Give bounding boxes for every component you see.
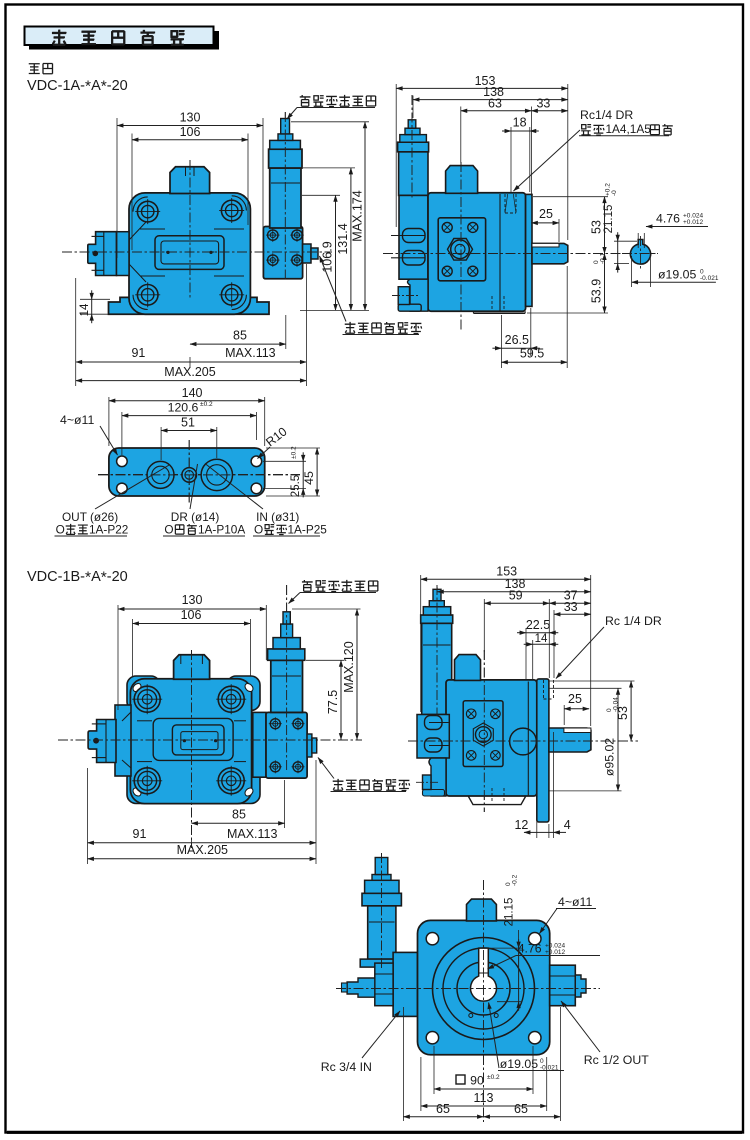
svg-text:-0.04: -0.04 bbox=[612, 697, 619, 712]
svg-text:33: 33 bbox=[536, 96, 550, 110]
svg-text:4~ø11: 4~ø11 bbox=[558, 895, 592, 909]
svg-text:O: O bbox=[254, 523, 263, 537]
svg-text:±0.2: ±0.2 bbox=[200, 401, 213, 408]
svg-text:±0.2: ±0.2 bbox=[487, 1074, 500, 1081]
svg-text:1A-P10A: 1A-P10A bbox=[198, 523, 245, 537]
svg-text:65: 65 bbox=[514, 1102, 528, 1116]
svg-text:21.15: 21.15 bbox=[504, 898, 516, 927]
svg-text:131.4: 131.4 bbox=[336, 223, 350, 254]
svg-text:18: 18 bbox=[513, 116, 527, 130]
svg-text:25: 25 bbox=[539, 207, 553, 221]
svg-text:14: 14 bbox=[79, 303, 91, 316]
svg-text:12: 12 bbox=[514, 818, 528, 832]
svg-text:4: 4 bbox=[564, 818, 571, 832]
svg-text:106.9: 106.9 bbox=[321, 241, 335, 272]
svg-text:90: 90 bbox=[470, 1074, 484, 1088]
svg-text:4.76: 4.76 bbox=[518, 942, 542, 956]
svg-text:4~ø11: 4~ø11 bbox=[60, 413, 94, 427]
svg-text:-0.2: -0.2 bbox=[511, 874, 518, 886]
svg-text:63: 63 bbox=[488, 96, 502, 110]
svg-text:59: 59 bbox=[509, 589, 523, 603]
svg-text:33: 33 bbox=[564, 600, 578, 614]
svg-text:77.5: 77.5 bbox=[326, 690, 340, 714]
svg-text:65: 65 bbox=[436, 1102, 450, 1116]
svg-text:25: 25 bbox=[568, 692, 582, 706]
svg-text:MAX.113: MAX.113 bbox=[227, 827, 278, 841]
svg-text:Rc 1/4 DR: Rc 1/4 DR bbox=[605, 614, 662, 628]
svg-text:Rc 3/4 IN: Rc 3/4 IN bbox=[321, 1060, 372, 1074]
svg-text:O: O bbox=[164, 523, 173, 537]
svg-text:113: 113 bbox=[474, 1091, 494, 1105]
svg-text:130: 130 bbox=[180, 111, 201, 125]
svg-text:-0: -0 bbox=[611, 190, 618, 196]
svg-text:106: 106 bbox=[180, 125, 201, 139]
svg-text:59.5: 59.5 bbox=[520, 347, 544, 361]
svg-text:MAX.205: MAX.205 bbox=[177, 843, 228, 857]
svg-text:85: 85 bbox=[233, 329, 247, 343]
svg-text:MAX.174: MAX.174 bbox=[351, 190, 365, 241]
svg-text:Rc1/4 DR: Rc1/4 DR bbox=[580, 108, 633, 122]
svg-text:Rc 1/2 OUT: Rc 1/2 OUT bbox=[584, 1053, 649, 1067]
svg-text:106: 106 bbox=[181, 608, 202, 622]
svg-text:21.15: 21.15 bbox=[603, 205, 615, 234]
svg-text:-0.1: -0.1 bbox=[599, 252, 606, 264]
svg-text:53.9: 53.9 bbox=[590, 279, 604, 303]
svg-text:MAX.205: MAX.205 bbox=[164, 365, 215, 379]
svg-text:91: 91 bbox=[133, 827, 147, 841]
svg-text:ø95.02: ø95.02 bbox=[603, 738, 617, 776]
svg-text:25.5: 25.5 bbox=[290, 475, 302, 497]
svg-text:45: 45 bbox=[302, 471, 316, 485]
svg-text:MAX.120: MAX.120 bbox=[342, 641, 356, 692]
svg-text:1A4,1A5: 1A4,1A5 bbox=[606, 122, 652, 136]
svg-text:VDC-1B-*A*-20: VDC-1B-*A*-20 bbox=[27, 569, 128, 587]
svg-text:-0.021: -0.021 bbox=[700, 275, 719, 282]
svg-text:MAX.113: MAX.113 bbox=[225, 346, 276, 360]
svg-text:22.5: 22.5 bbox=[526, 618, 550, 632]
svg-text:1A-P25: 1A-P25 bbox=[288, 523, 328, 537]
svg-text:85: 85 bbox=[232, 808, 246, 822]
svg-text:14: 14 bbox=[535, 633, 548, 645]
svg-text:O: O bbox=[56, 523, 65, 537]
svg-text:+0.012: +0.012 bbox=[545, 949, 565, 956]
svg-text:4.76: 4.76 bbox=[656, 212, 680, 226]
svg-text:53: 53 bbox=[590, 220, 604, 234]
svg-text:140: 140 bbox=[182, 386, 203, 400]
svg-text:+0.012: +0.012 bbox=[683, 219, 703, 226]
svg-text:ø19.05: ø19.05 bbox=[658, 268, 696, 282]
svg-text:VDC-1A-*A*-20: VDC-1A-*A*-20 bbox=[27, 78, 128, 96]
svg-text:91: 91 bbox=[131, 346, 145, 360]
svg-text:26.5: 26.5 bbox=[505, 333, 529, 347]
svg-text:1A-P22: 1A-P22 bbox=[89, 523, 128, 537]
svg-text:120.6: 120.6 bbox=[168, 401, 199, 415]
svg-text:ø19.05: ø19.05 bbox=[500, 1057, 538, 1071]
svg-text:130: 130 bbox=[182, 593, 203, 607]
svg-text:51: 51 bbox=[181, 416, 195, 430]
